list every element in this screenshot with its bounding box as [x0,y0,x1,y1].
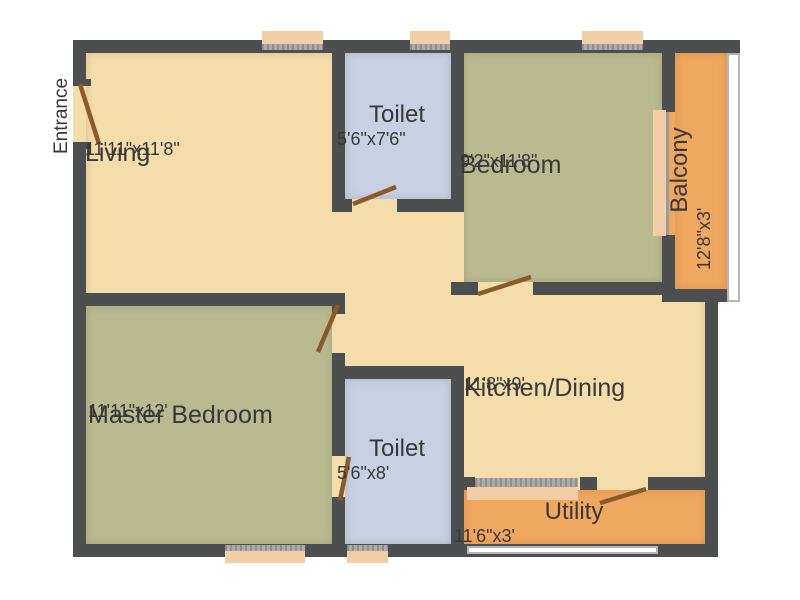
utility-dims: 11'6"x3' [454,526,515,546]
wall-kitchen-utility-right [648,477,718,490]
living-window-sill [262,44,323,50]
balcony-sliding-door [653,110,666,236]
balcony-dims: 12'8"x3' [694,208,714,270]
toilet-top-name: Toilet [337,102,457,129]
toilet-bottom-name: Toilet [337,436,457,463]
wall-outer-right [705,302,718,557]
bedroom-window-sill [582,44,643,50]
wall-kitchen-utility-mid [580,477,597,490]
wall-toilet-top-bottom-left [332,199,352,212]
toilet-bottom-window [347,551,388,563]
entrance-opening [73,86,86,142]
balcony-label: Balcony 12'8"x3' [667,70,719,270]
utility-railing [467,546,658,554]
wall-bedroom-bottom-left [451,282,478,295]
master-bedroom-dims: 11'11"x12' [88,401,168,421]
wall-master-right-lower [332,497,345,544]
balcony-railing [727,53,740,302]
wall-toilet-top-bottom-right [397,199,464,212]
wall-outer-left-upper [73,40,86,79]
toilet-top-dims: 5'6"x7'6" [337,129,406,149]
kitchen-window-sill [475,478,578,487]
bedroom-window [582,31,643,44]
wall-master-door-stub [332,306,345,314]
utility-label: Utility 11'6"x3' [454,499,694,526]
entrance-label: Entrance [51,71,73,161]
balcony-name: Balcony [667,70,694,270]
bedroom-dims: 9'2"x11'8" [460,151,537,171]
toilet-top-window-sill [410,44,450,50]
toilet-bottom-label: Toilet 5'6"x8' [337,436,457,463]
wall-master-top [73,293,345,306]
wall-toilet-bottom-top [332,366,464,379]
living-window [262,31,323,44]
toilet-top-label: Toilet 5'6"x7'6" [337,102,457,129]
floor-plan: Living 11'11"x11'8" Toilet 5'6"x7'6" Bed… [0,0,800,600]
kitchen-dining-dims: 11'8"x9' [464,374,525,394]
utility-name: Utility [454,499,694,526]
toilet-top-window [410,31,450,44]
living-dims: 11'11"x11'8" [85,139,180,159]
toilet-bottom-dims: 5'6"x8' [337,463,389,483]
entrance-jamb-top [73,79,91,86]
wall-outer-left-lower [73,149,86,557]
wall-bedroom-bottom-right [533,282,675,295]
master-window [225,551,305,563]
